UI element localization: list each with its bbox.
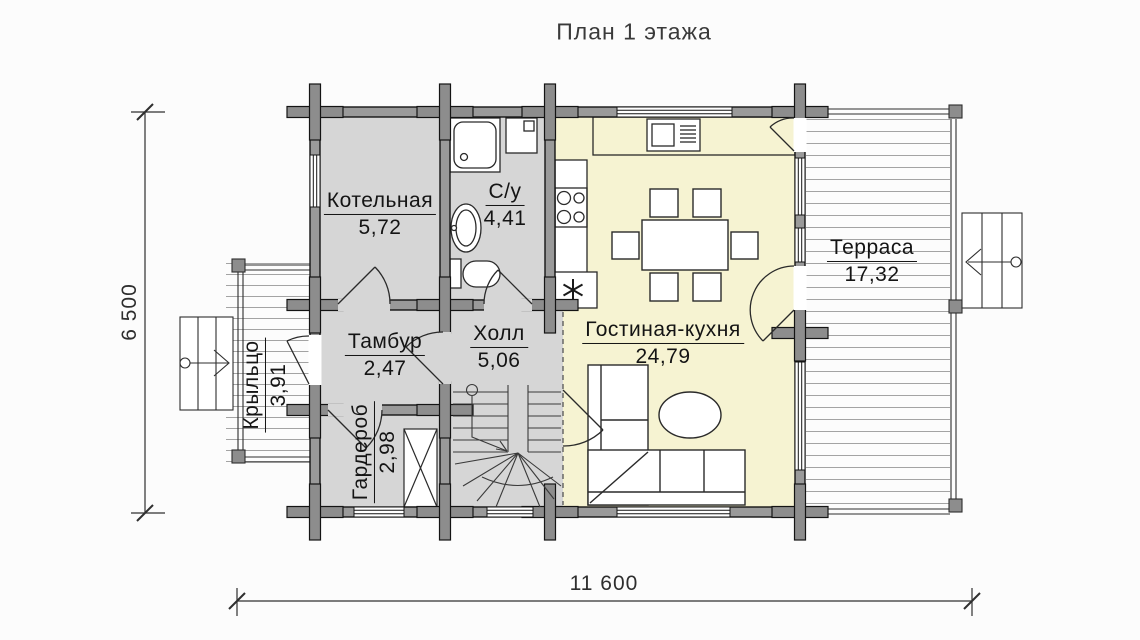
room-area: 2,47 — [364, 356, 407, 381]
window-bottom-2 — [487, 507, 533, 517]
terrace-deck — [806, 105, 962, 514]
room-label-su: С/у 4,41 — [484, 180, 527, 230]
room-label-kryltso: Крыльцо 3,91 — [240, 337, 290, 432]
room-label-holl: Холл 5,06 — [470, 322, 528, 372]
room-name: Терраса — [827, 236, 917, 262]
floorplan-svg — [0, 0, 1140, 640]
door-tambur-hall-opening — [439, 332, 451, 384]
washer-icon — [506, 118, 537, 153]
room-name: Котельная — [324, 189, 436, 215]
floorplan-page: План 1 этажа Котельная 5,72 С/у 4,41 Там… — [0, 0, 1140, 640]
door-boiler-opening — [338, 299, 390, 311]
window-left-boiler — [310, 155, 320, 207]
window-right-2 — [795, 228, 805, 262]
room-label-tambur: Тамбур 2,47 — [345, 330, 425, 380]
room-label-garderob: Гардероб 2,98 — [349, 401, 399, 503]
window-right-3 — [795, 362, 805, 470]
room-label-gostinaya: Гостиная-кухня 24,79 — [582, 318, 744, 368]
room-area: 17,32 — [844, 262, 899, 287]
window-bottom-1 — [354, 507, 404, 517]
window-bottom-3 — [617, 507, 730, 517]
window-top-kitchen — [617, 107, 732, 117]
room-area: 24,79 — [635, 344, 690, 369]
dining-table — [642, 220, 728, 270]
dimension-width-label: 11 600 — [570, 572, 639, 596]
dimension-depth-label: 6 500 — [118, 283, 142, 341]
room-name: Крыльцо — [240, 337, 266, 432]
room-area: 3,91 — [266, 364, 291, 407]
room-name: С/у — [486, 180, 525, 206]
room-area: 4,41 — [484, 206, 527, 231]
terrace-steps — [962, 213, 1022, 308]
sink-icon — [451, 204, 481, 252]
room-label-kotelnaya: Котельная 5,72 — [324, 189, 436, 239]
room-name: Холл — [470, 322, 528, 348]
porch-steps — [180, 317, 233, 410]
wardrobe-unit — [404, 429, 437, 507]
room-label-terrasa: Терраса 17,32 — [827, 236, 917, 286]
stove — [555, 160, 587, 280]
room-name: Гостиная-кухня — [582, 318, 744, 344]
coffee-table — [659, 392, 721, 438]
door-terrace-top-opening — [794, 118, 807, 152]
room-name: Гардероб — [349, 401, 375, 503]
room-area: 5,06 — [478, 348, 521, 373]
toilet-icon — [450, 259, 500, 288]
window-right-1 — [795, 158, 805, 215]
shower-icon — [450, 118, 500, 172]
room-area: 5,72 — [359, 215, 402, 240]
door-bath-opening — [484, 299, 532, 311]
plan-title: План 1 этажа — [556, 19, 712, 46]
door-porch-opening — [309, 335, 322, 385]
room-area: 2,98 — [375, 431, 400, 474]
room-name: Тамбур — [345, 330, 425, 356]
door-terrace-mid-opening — [794, 266, 807, 310]
